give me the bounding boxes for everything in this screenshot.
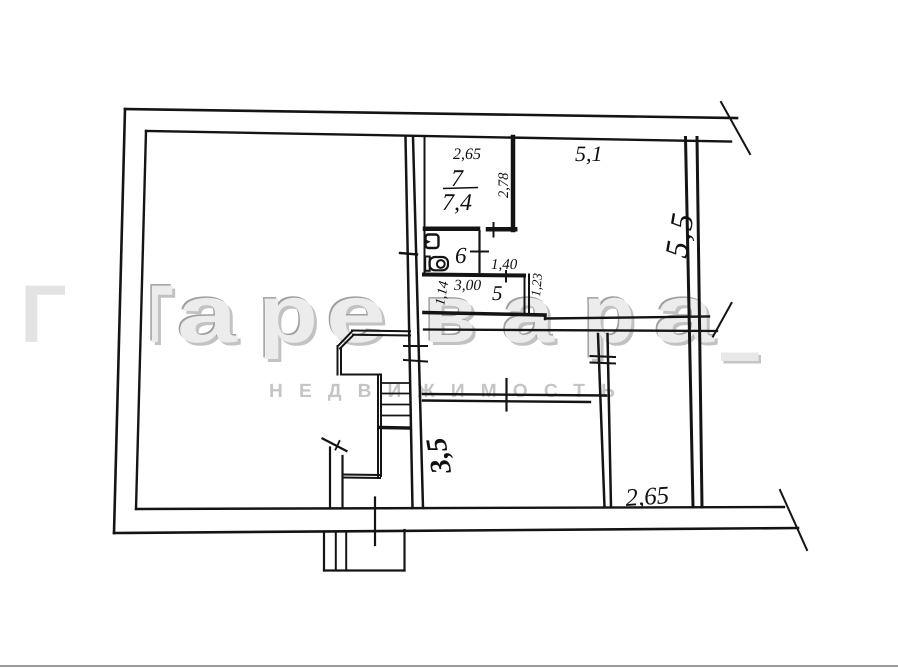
svg-text:7,4: 7,4 [442,190,472,216]
svg-text:Г: Г [20,269,67,360]
svg-text:р: р [258,269,318,360]
svg-text:1,23: 1,23 [528,272,545,297]
svg-text:Г: Г [149,269,173,360]
svg-text:6: 6 [455,243,467,268]
svg-text:2,78: 2,78 [496,172,512,198]
svg-text:2,65: 2,65 [453,146,481,163]
svg-text:НЕДВИЖИМОСТЬ: НЕДВИЖИМОСТЬ [269,381,631,402]
svg-text:5,1: 5,1 [575,141,603,166]
svg-text:а: а [654,269,716,360]
svg-text:3,00: 3,00 [453,277,481,294]
svg-text:1,40: 1,40 [491,257,518,273]
svg-text:а: а [177,269,239,360]
svg-text:5: 5 [492,281,503,305]
svg-text:3,5: 3,5 [420,435,458,477]
svg-text:е: е [326,269,386,360]
svg-text:2,65: 2,65 [625,482,671,512]
